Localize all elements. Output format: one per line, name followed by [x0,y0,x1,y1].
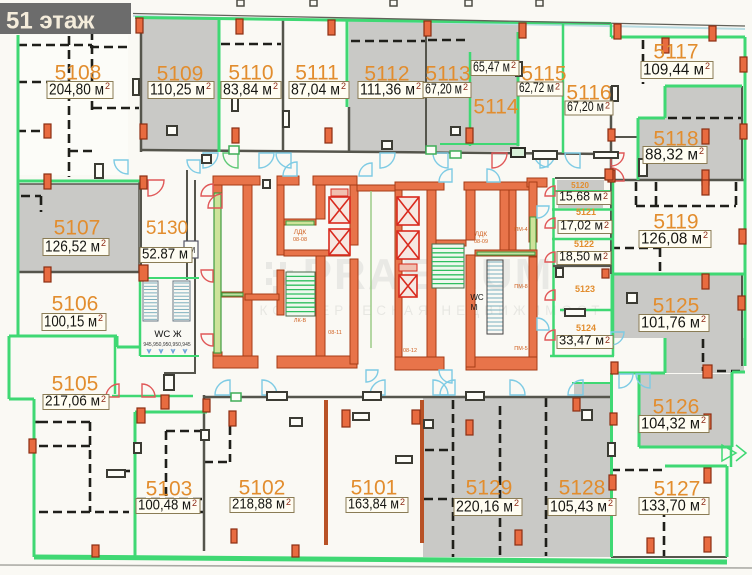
svg-text:2: 2 [101,238,106,248]
svg-text:217,06 м: 217,06 м [45,393,100,410]
svg-text:5114: 5114 [473,96,518,119]
svg-text:109,44 м: 109,44 м [643,62,704,79]
svg-text:ЛДК: ЛДК [294,229,307,236]
svg-text:5107: 5107 [54,217,101,240]
svg-text:163,84 м: 163,84 м [348,496,399,513]
svg-text:5106: 5106 [52,293,99,316]
svg-text:2: 2 [605,335,610,345]
svg-text:ПМ-4: ПМ-4 [514,227,527,233]
svg-text:5130: 5130 [146,218,188,239]
svg-text:2: 2 [273,81,278,91]
svg-text:100,48 м: 100,48 м [138,497,191,514]
svg-text:2: 2 [701,314,706,324]
svg-text:5121: 5121 [576,207,596,217]
svg-text:33,47 м: 33,47 м [559,334,604,348]
svg-text:2: 2 [400,497,405,507]
svg-text:2: 2 [603,251,608,261]
svg-text:2: 2 [98,313,103,323]
svg-text:51 этаж: 51 этаж [6,8,95,35]
svg-text:2: 2 [206,81,211,91]
svg-text:88,32 м: 88,32 м [645,147,698,164]
svg-text:2: 2 [101,394,106,404]
svg-text:ПМ-8: ПМ-8 [514,284,527,290]
svg-text:08-11: 08-11 [328,330,342,336]
svg-text:08-09: 08-09 [474,239,488,245]
svg-text:08-12: 08-12 [403,348,417,354]
svg-text:2: 2 [605,101,610,111]
svg-text:2: 2 [701,415,706,425]
svg-text:М: М [471,303,478,312]
svg-text:2: 2 [703,230,708,240]
svg-text:2: 2 [705,61,710,71]
svg-text:945,950,950,950,945: 945,950,950,950,945 [143,342,190,348]
svg-text:218,88 м: 218,88 м [232,496,285,513]
svg-text:5123: 5123 [575,284,595,294]
svg-text:87,04 м: 87,04 м [291,82,340,99]
svg-text:105,43 м: 105,43 м [550,499,607,516]
svg-text:2: 2 [105,81,110,91]
svg-text:5129: 5129 [466,477,513,500]
svg-text:2: 2 [514,498,519,508]
svg-text:ПМ-5: ПМ-5 [514,346,527,352]
svg-text:08-08: 08-08 [293,237,307,243]
svg-text:WC: WC [470,293,484,302]
svg-text:100,15 м: 100,15 м [44,314,97,331]
svg-text:204,80 м: 204,80 м [49,82,104,99]
svg-text:2: 2 [603,191,608,201]
svg-text:17,02 м: 17,02 м [560,219,603,233]
svg-text:126,08 м: 126,08 м [641,231,702,248]
svg-text:2: 2 [463,82,468,92]
svg-text:67,20 м: 67,20 м [425,82,462,98]
svg-text:65,47 м: 65,47 м [473,60,510,76]
svg-text:133,70 м: 133,70 м [641,498,700,515]
svg-text:67,20 м: 67,20 м [567,98,604,114]
svg-text:2: 2 [286,497,291,507]
svg-text:18,50 м: 18,50 м [559,250,602,264]
svg-text:15,68 м: 15,68 м [559,190,602,204]
svg-text:83,84 м: 83,84 м [223,82,272,99]
svg-text:5124: 5124 [576,323,596,333]
svg-text:2: 2 [608,498,613,508]
svg-text:2: 2 [341,81,346,91]
svg-text:ЛК-В: ЛК-В [294,318,307,324]
svg-text:62,72 м: 62,72 м [519,79,554,95]
svg-text:5128: 5128 [559,477,606,500]
svg-text:110,25 м: 110,25 м [150,82,205,99]
svg-text:ЛДК: ЛДК [475,231,488,238]
svg-text:5122: 5122 [574,239,594,249]
svg-text:2: 2 [604,220,609,230]
svg-text:104,32 м: 104,32 м [641,416,700,433]
svg-text:2: 2 [699,146,704,156]
svg-text:126,52 м: 126,52 м [45,239,100,256]
svg-text:111,36 м: 111,36 м [360,82,415,99]
svg-text:52.87 м: 52.87 м [142,246,188,263]
svg-text:2: 2 [511,60,516,70]
svg-text:5117: 5117 [653,41,698,64]
svg-text:220,16 м: 220,16 м [456,499,513,516]
svg-text:2: 2 [701,497,706,507]
svg-text:101,76 м: 101,76 м [641,315,700,332]
svg-text:2: 2 [192,498,197,508]
svg-text:WC Ж: WC Ж [154,329,181,340]
svg-text:2: 2 [416,81,421,91]
svg-text:2: 2 [555,82,560,92]
